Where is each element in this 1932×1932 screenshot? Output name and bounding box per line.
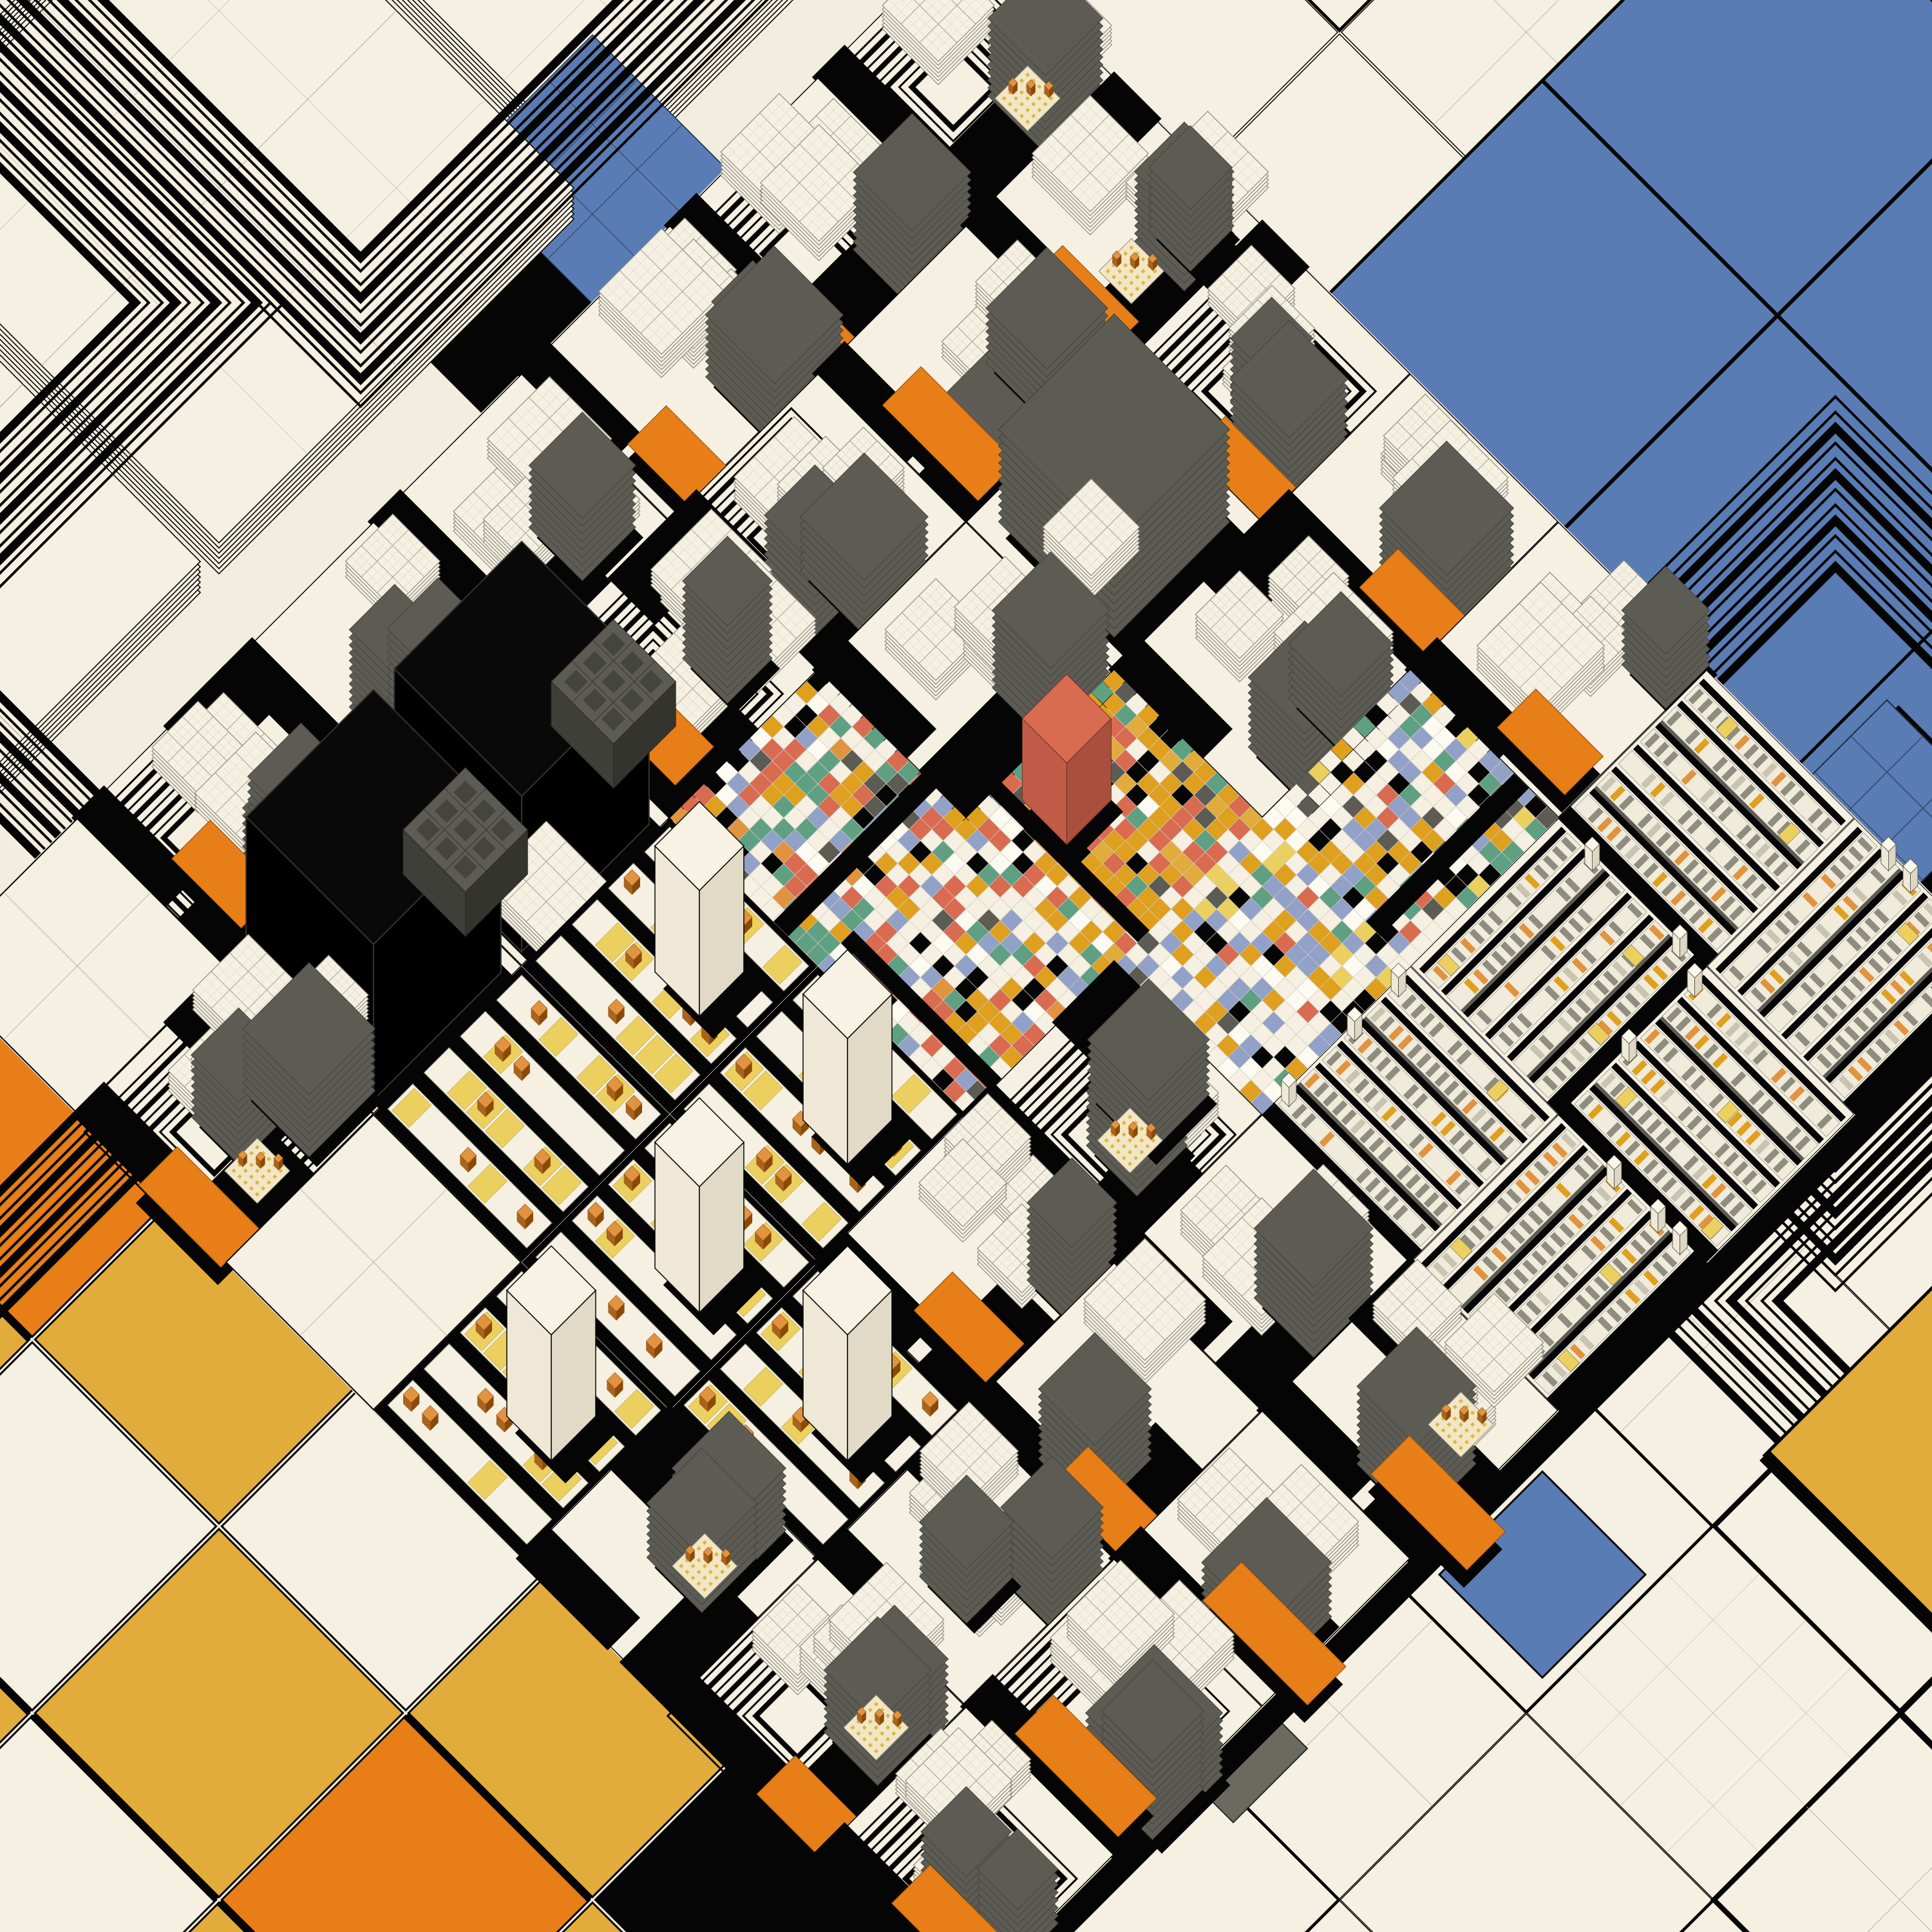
isometric-city-artwork [0,0,1932,1932]
artwork-frame [0,0,1932,1932]
